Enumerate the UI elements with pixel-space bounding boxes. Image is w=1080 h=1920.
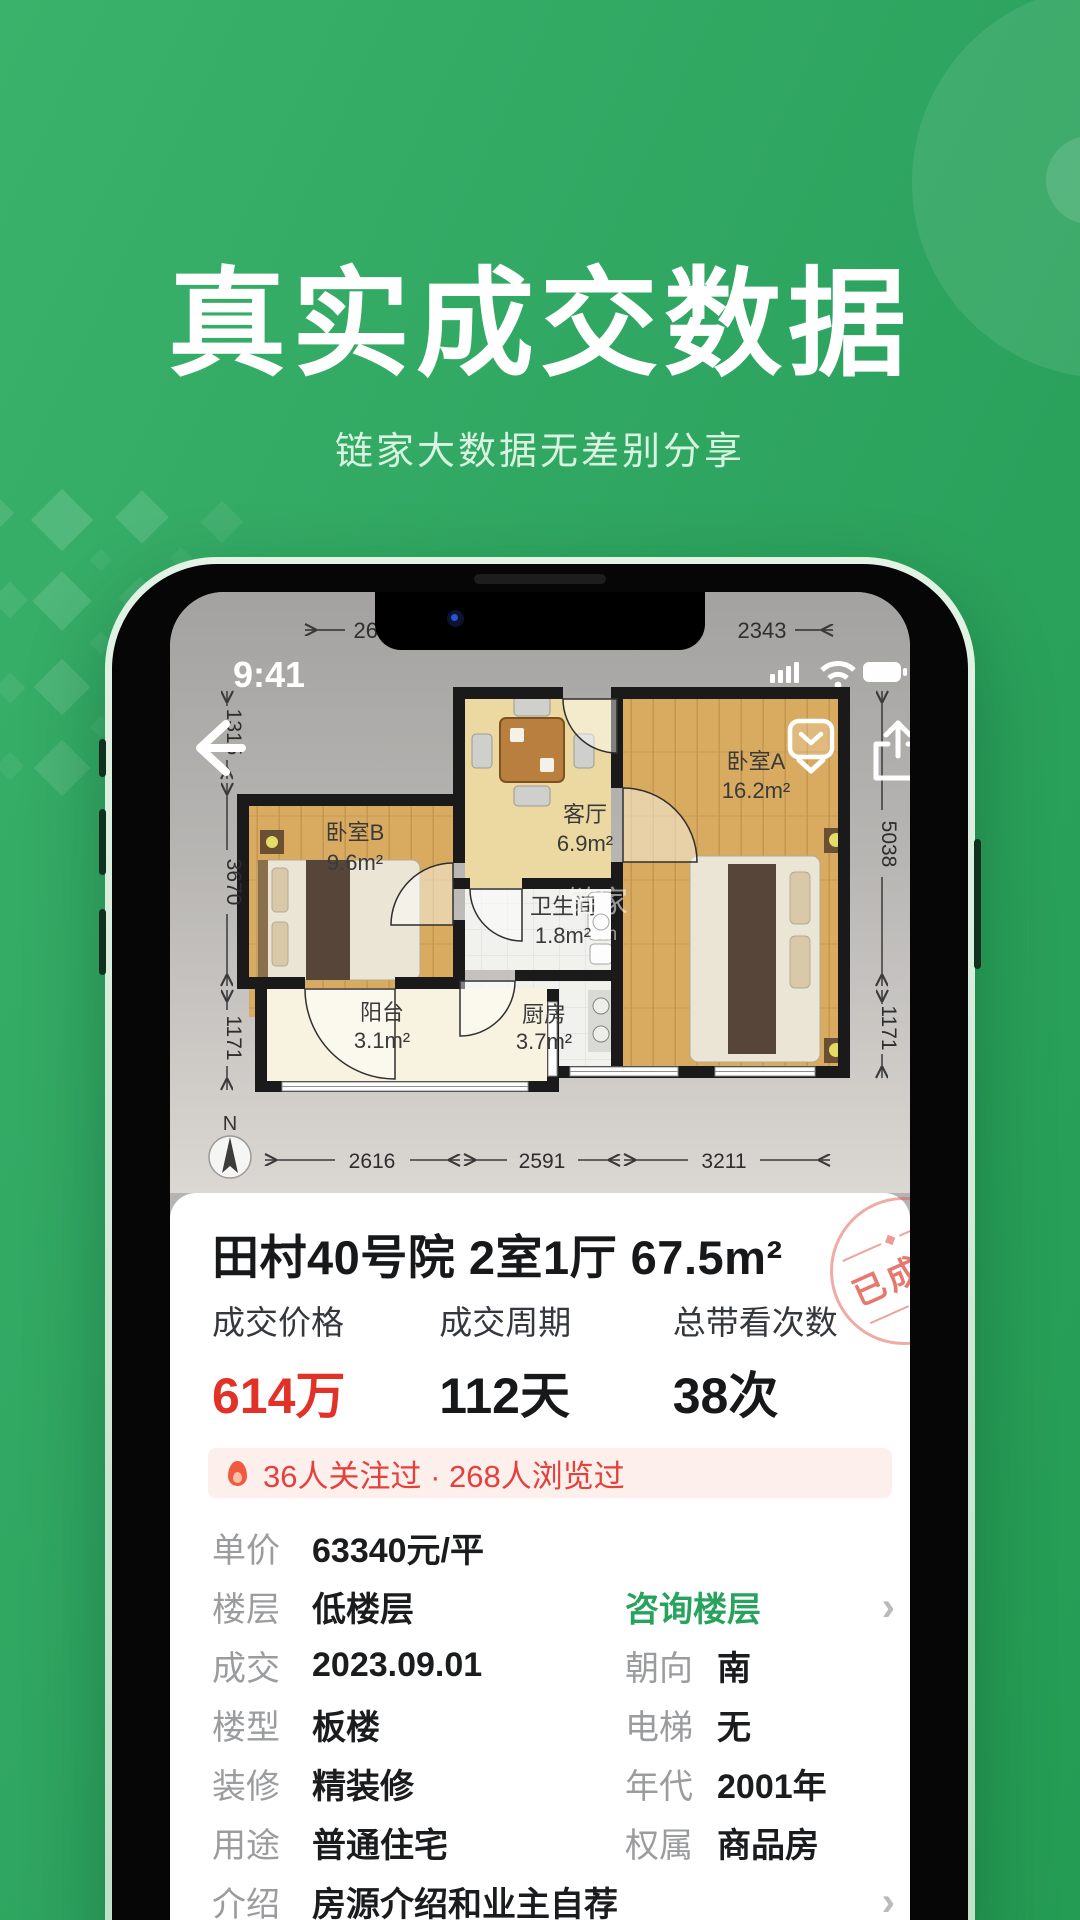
chevron-right-icon[interactable]: › [882,1882,895,1920]
svg-text:客厅: 客厅 [563,802,607,827]
svg-text:卧室B: 卧室B [326,820,385,845]
svg-text:6.9m²: 6.9m² [557,831,613,856]
listing-title: 田村40号院 2室1厅 67.5m² [212,1219,783,1288]
row-decoration: 装修 精装修 年代 2001年 [212,1754,895,1813]
svg-text:3211: 3211 [701,1150,746,1173]
wifi-icon [822,664,854,689]
svg-text:3670: 3670 [222,859,245,906]
svg-text:3.1m²: 3.1m² [354,1028,410,1053]
row-intro[interactable]: 介绍 房源介绍和业主自荐 › [212,1872,895,1920]
front-camera [447,610,464,627]
row-building-type: 楼型 板楼 电梯 无 [212,1695,895,1754]
svg-text:5038: 5038 [877,821,900,868]
flame-icon [228,1461,247,1486]
page-title: 真实成交数据 [0,228,1080,399]
notch [375,592,705,650]
visits-value: 38次 [673,1356,900,1428]
battery-icon [863,662,907,682]
power-button [974,839,981,969]
svg-text:N: N [223,1113,237,1135]
svg-text:2616: 2616 [349,1150,396,1173]
svg-text:1171: 1171 [877,1005,900,1050]
svg-text:2343: 2343 [738,618,787,643]
chevron-right-icon[interactable]: › [882,1587,895,1627]
floorplan-svg: 9:41 [170,592,910,1193]
row-deal-date: 成交 2023.09.01 朝向 南 [212,1636,895,1695]
listing-card: 田村40号院 2室1厅 67.5m² 已成交 成交价格 61 [170,1193,910,1920]
volume-up-button [99,809,106,875]
svg-text:9.6m²: 9.6m² [327,850,383,875]
svg-text:3.7m²: 3.7m² [516,1029,572,1054]
row-unit-price: 单价 63340元/平 [212,1518,895,1577]
speaker-slot [474,574,606,584]
floorplan-section: 9:41 [170,592,910,1193]
popularity-banner: 36人关注过 · 268人浏览过 [208,1448,892,1498]
status-time: 9:41 [233,654,305,695]
share-button[interactable] [876,723,910,778]
svg-text:卧室A: 卧室A [727,749,786,774]
ask-floor-link[interactable]: 咨询楼层 [625,1582,761,1631]
phone-bezel: 9:41 [112,564,968,1920]
deal-price-value: 614万 [212,1356,439,1428]
svg-text:链家: 链家 [568,886,628,919]
mute-switch [99,739,106,777]
svg-text:16.2m²: 16.2m² [722,778,790,803]
svg-text:2591: 2591 [519,1150,566,1173]
svg-text:厨房: 厨房 [522,1002,566,1027]
svg-text:阳台: 阳台 [360,1000,404,1025]
marketing-page: 真实成交数据 链家大数据无差别分享 [0,0,1080,1920]
row-floor[interactable]: 楼层 低楼层 咨询楼层 › [212,1577,895,1636]
popularity-text: 36人关注过 · 268人浏览过 [263,1451,625,1496]
phone-screen: 9:41 [170,592,910,1920]
deal-cycle-value: 112天 [439,1356,672,1428]
compass: N [209,1113,251,1178]
page-subtitle: 链家大数据无差别分享 [0,420,1080,475]
phone-mockup: 9:41 [105,557,975,1920]
volume-down-button [99,909,106,975]
signal-icon [770,662,799,683]
svg-text:1171: 1171 [222,1015,245,1060]
row-usage: 用途 普通住宅 权属 商品房 [212,1813,895,1872]
dims-bottom: 2616 2591 3211 [265,1150,830,1173]
detail-rows: 单价 63340元/平 楼层 低楼层 咨询楼层 › 成交 2023.09.01 [212,1518,895,1920]
svg-text:.com: .com [576,924,617,945]
